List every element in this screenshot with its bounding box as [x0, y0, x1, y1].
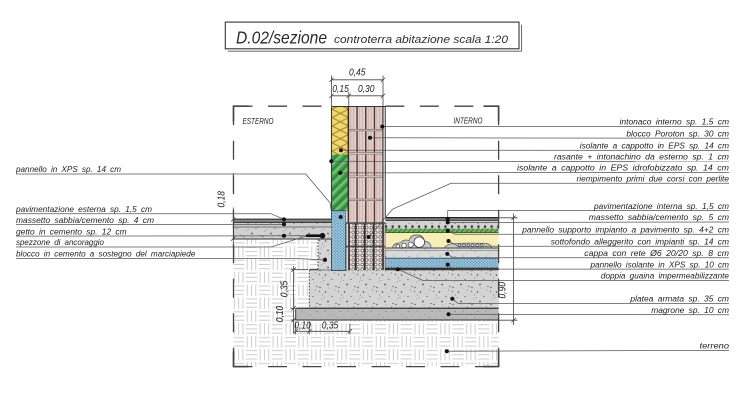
svg-text:terreno: terreno — [700, 341, 730, 351]
svg-text:0,15: 0,15 — [332, 84, 349, 95]
svg-text:blocco Poroton sp. 30 cm: blocco Poroton sp. 30 cm — [626, 128, 729, 138]
svg-text:pannello supporto impianto: pannello supporto impianto a pavimento s… — [521, 224, 729, 234]
svg-text:0,10: 0,10 — [275, 305, 286, 322]
svg-text:doppia guaina impermeabilizz: doppia guaina impermeabilizzante — [601, 271, 729, 281]
svg-text:sottofondo alleggerito con: sottofondo alleggerito con impianti sp. … — [551, 237, 729, 247]
svg-text:massetto sabbia/cemento sp.: massetto sabbia/cemento sp. 4 cm — [16, 215, 154, 225]
svg-text:spezzone di ancoraggio: spezzone di ancoraggio — [16, 237, 104, 247]
svg-text:rasante + intonachino da e: rasante + intonachino da esterno sp. 1 c… — [554, 152, 729, 162]
svg-text:massetto sabbia/cemento sp.: massetto sabbia/cemento sp. 5 cm — [589, 212, 729, 222]
svg-text:0,30: 0,30 — [358, 84, 375, 95]
svg-text:controterra abitazione scala: controterra abitazione scala 1:20 — [334, 34, 509, 46]
svg-text:0,10: 0,10 — [294, 320, 311, 331]
svg-text:isolante a cappotto in EPS: isolante a cappotto in EPS sp. 14 cm — [580, 141, 729, 151]
svg-text:riempimento primi due corsi: riempimento primi due corsi con perlite — [577, 174, 730, 184]
svg-text:pannello in XPS sp. 14 cm: pannello in XPS sp. 14 cm — [15, 164, 121, 174]
svg-text:ESTERNO: ESTERNO — [243, 116, 274, 126]
svg-text:0,35: 0,35 — [279, 280, 290, 297]
svg-text:pannello isolante in XPS s: pannello isolante in XPS sp. 10 cm — [590, 259, 729, 269]
svg-text:getto in cemento sp. 12 c: getto in cemento sp. 12 cm — [16, 226, 127, 236]
svg-text:0,90: 0,90 — [498, 282, 509, 299]
svg-text:isolante a cappotto in EPS: isolante a cappotto in EPS idrofobizzato… — [517, 163, 729, 173]
svg-text:D.02/sezione: D.02/sezione — [236, 27, 327, 47]
svg-text:pavimentazione interna sp.: pavimentazione interna sp. 1,5 cm — [593, 201, 729, 211]
svg-text:0,35: 0,35 — [322, 320, 339, 331]
svg-text:INTERNO: INTERNO — [454, 116, 483, 126]
svg-text:cappa con rete Ø6 20/20 s: cappa con rete Ø6 20/20 sp. 8 cm — [584, 248, 729, 258]
svg-text:0,18: 0,18 — [217, 191, 228, 208]
svg-text:intonaco interno sp. 1,5 c: intonaco interno sp. 1,5 cm — [620, 117, 730, 127]
svg-text:pavimentazione esterna sp.: pavimentazione esterna sp. 1,5 cm — [15, 204, 152, 214]
svg-text:platea armata sp. 35 cm: platea armata sp. 35 cm — [629, 294, 729, 304]
svg-text:0,45: 0,45 — [349, 68, 366, 79]
svg-text:magrone sp. 10 cm: magrone sp. 10 cm — [651, 305, 729, 315]
svg-text:blocco in cemento a sosteg: blocco in cemento a sostegno del marciap… — [16, 249, 196, 259]
